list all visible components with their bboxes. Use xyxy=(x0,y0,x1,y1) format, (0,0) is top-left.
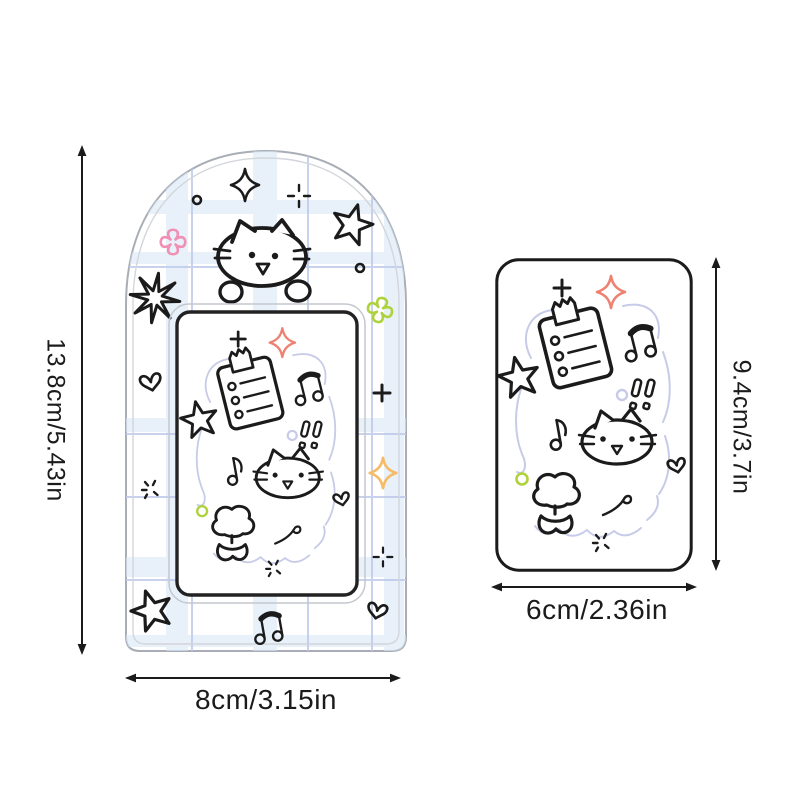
width-arrow-right xyxy=(490,579,698,595)
height-label-right: 9.4cm/3.7in xyxy=(727,360,756,495)
height-arrow-left xyxy=(74,144,90,656)
height-arrow-right xyxy=(708,256,724,572)
height-label-left: 13.8cm/5.43in xyxy=(41,338,70,502)
width-label-right: 6cm/2.36in xyxy=(526,594,668,626)
photocard-border xyxy=(497,260,691,570)
inner-photocard xyxy=(177,312,357,595)
arch-photocard-holder xyxy=(122,147,410,655)
photocard xyxy=(495,258,693,572)
product-dimension-diagram: 13.8cm/5.43in 8cm/3.15in 9.4cm/3.7in 6cm… xyxy=(0,0,800,800)
width-label-left: 8cm/3.15in xyxy=(195,684,337,716)
